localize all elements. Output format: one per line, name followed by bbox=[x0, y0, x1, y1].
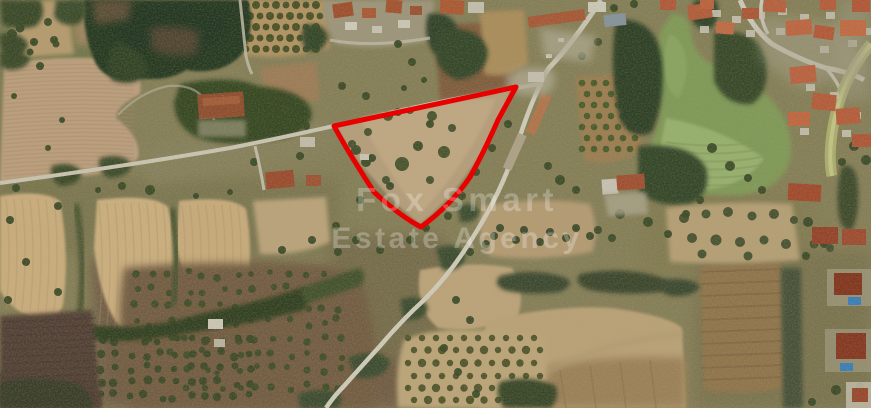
svg-text:Estate Agency: Estate Agency bbox=[331, 222, 582, 255]
svg-text:Fox Smart: Fox Smart bbox=[356, 181, 558, 218]
